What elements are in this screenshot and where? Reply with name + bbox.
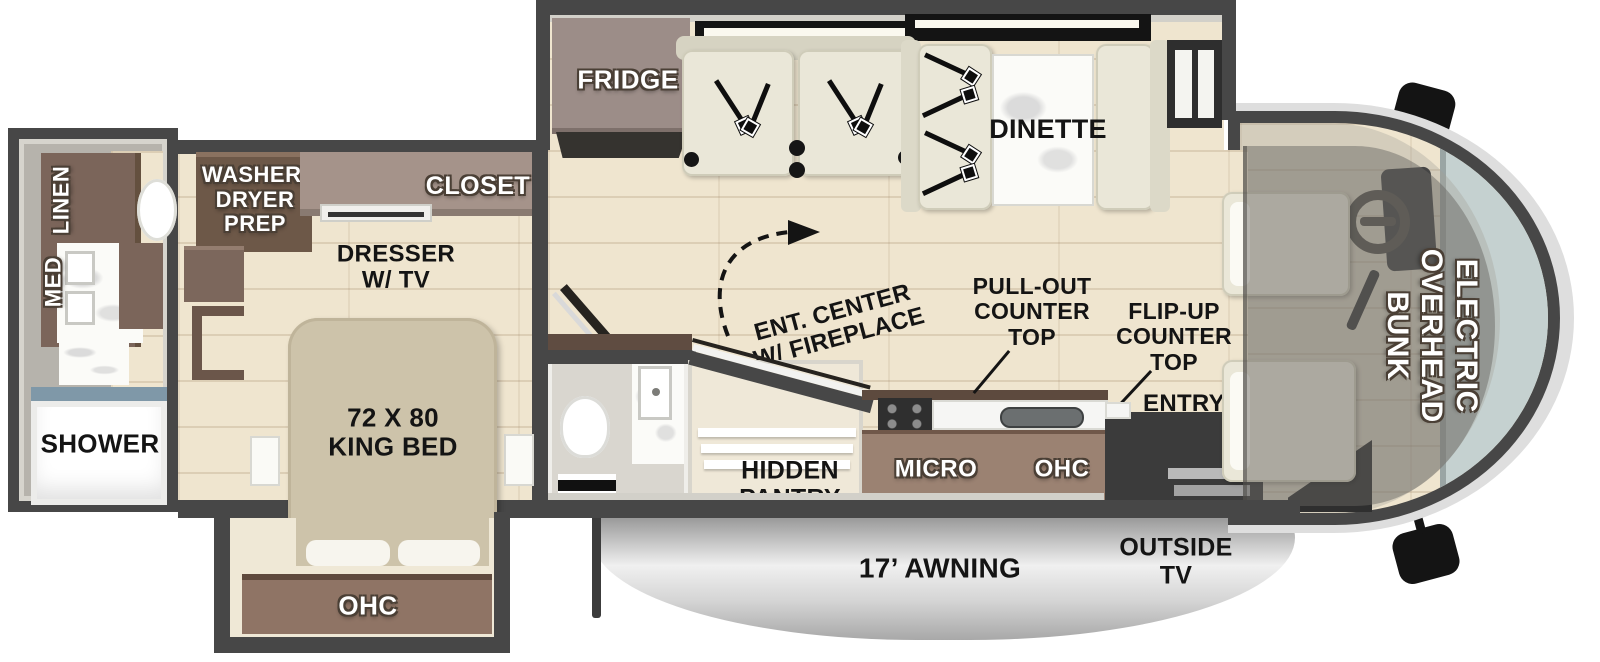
sink-drain xyxy=(652,388,660,396)
outside-tv-label: OUTSIDE TV xyxy=(1119,535,1232,590)
bed-slideout-wall-left xyxy=(214,512,230,653)
awning-left-edge xyxy=(592,514,601,618)
med-label: MED xyxy=(42,257,67,307)
cupholder xyxy=(789,140,805,156)
entry-label: ENTRY xyxy=(1143,391,1225,417)
bedroom-side-cabinet xyxy=(184,246,244,302)
shower-label: SHOWER xyxy=(41,430,160,459)
kitchen-ohc-label: OHC xyxy=(1035,457,1090,484)
king-bed-label: 72 X 80 KING BED xyxy=(328,403,458,460)
nightstand xyxy=(250,436,280,486)
cupholder xyxy=(789,162,805,178)
dinette-label: DINETTE xyxy=(989,115,1107,145)
top-slideout-wall-right xyxy=(1222,0,1236,120)
bath-counter-strip xyxy=(59,335,129,385)
med-cabinet xyxy=(119,243,163,329)
dinette-window-valance xyxy=(905,14,1151,41)
flip-up-counter-end xyxy=(1105,402,1131,419)
nightstand xyxy=(504,434,534,486)
awning-label: 17’ AWNING xyxy=(859,554,1021,585)
pillow xyxy=(306,540,390,566)
toilet-rear xyxy=(137,179,177,241)
bed-slideout-wall-right xyxy=(494,512,510,653)
linen-label: LINEN xyxy=(50,166,75,235)
pull-out-label: PULL-OUT COUNTER TOP xyxy=(973,274,1092,350)
bedroom-ohc-label: OHC xyxy=(338,591,397,620)
entry-step xyxy=(1174,485,1250,496)
toilet xyxy=(560,396,610,458)
dresser-tv-unit xyxy=(320,204,432,222)
fridge-label: FRIDGE xyxy=(577,65,678,94)
half-bath xyxy=(548,356,688,502)
cooktop xyxy=(878,398,932,434)
bedroom-main-divider-wall xyxy=(532,140,548,512)
dresser-label: DRESSER W/ TV xyxy=(337,242,455,295)
micro-label: MICRO xyxy=(895,457,978,484)
overhead-bunk-label: ELECTRIC OVERHEAD BUNK xyxy=(1379,230,1483,442)
bed-slideout-wall-bottom xyxy=(214,637,510,653)
wall-lining-bottom xyxy=(548,493,1104,500)
washer-dryer-label: WASHER/ DRYER PREP xyxy=(202,163,308,237)
top-slideout-wall-top xyxy=(536,0,1236,15)
bedroom-chair xyxy=(192,306,244,380)
bath-sink xyxy=(65,251,95,285)
rv-floorplan: 17’ AWNING OUTSIDE TV FRIDGE xyxy=(0,0,1600,662)
slideout-window xyxy=(1167,40,1222,128)
pillow xyxy=(398,540,480,566)
top-slideout-wall-left xyxy=(536,0,550,152)
kitchen-appliance xyxy=(1000,407,1084,428)
bath-sink xyxy=(65,291,95,325)
sofa-seat-right xyxy=(798,50,910,176)
half-bath-top-wall xyxy=(540,350,696,364)
cupholder xyxy=(684,152,699,167)
fridge-front xyxy=(556,132,688,158)
sofa xyxy=(676,36,916,178)
flip-up-label: FLIP-UP COUNTER TOP xyxy=(1116,299,1232,375)
closet-label: CLOSET xyxy=(426,172,530,200)
